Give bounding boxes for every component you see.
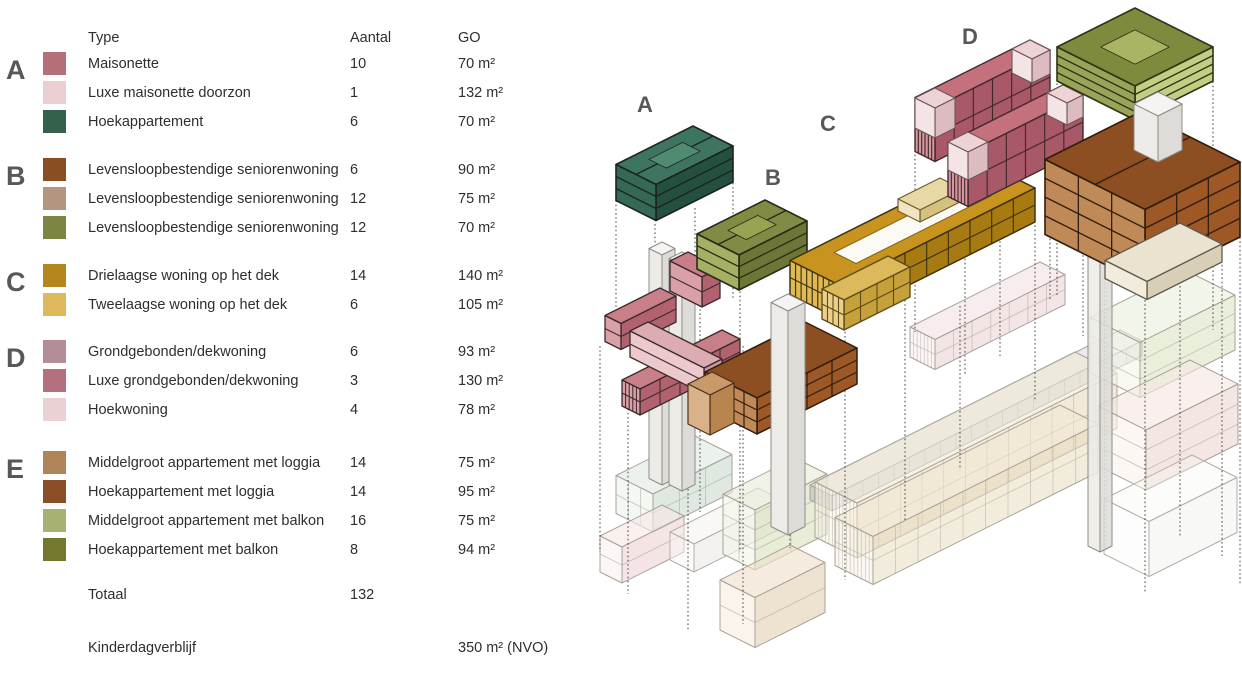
legend-row: Hoekappartement met balkon 8 94 m² xyxy=(40,535,584,564)
aantal-cell: 12 xyxy=(350,191,458,207)
legend-row: Hoekappartement 6 70 m² xyxy=(40,107,584,136)
legend-row: Levensloopbestendige seniorenwoning 6 90… xyxy=(40,155,584,184)
diagram-label-d: D xyxy=(962,24,978,49)
axonometric-diagram: ABCD xyxy=(580,0,1242,675)
go-cell: 75 m² xyxy=(458,513,584,529)
legend-row: Middelgroot appartement met loggia 14 75… xyxy=(40,448,584,477)
legend-row: Hoekwoning 4 78 m² xyxy=(40,395,584,424)
type-cell: Hoekwoning xyxy=(88,402,350,418)
color-swatch xyxy=(43,538,66,561)
aantal-cell: 16 xyxy=(350,513,458,529)
diagram-label-c: C xyxy=(820,111,836,136)
type-cell: Luxe grondgebonden/dekwoning xyxy=(88,373,350,389)
aantal-cell: 6 xyxy=(350,162,458,178)
legend-row: Levensloopbestendige seniorenwoning 12 7… xyxy=(40,184,584,213)
legend-group: C Drielaagse woning op het dek 14 140 m²… xyxy=(0,261,584,319)
legend-group: D Grondgebonden/dekwoning 6 93 m² Luxe g… xyxy=(0,337,584,424)
go-cell: 75 m² xyxy=(458,455,584,471)
group-letter: E xyxy=(0,448,40,564)
color-swatch xyxy=(43,480,66,503)
legend-panel: Type Aantal GO A Maisonette 10 70 m² Lux… xyxy=(0,0,584,662)
type-cell: Middelgroot appartement met loggia xyxy=(88,455,350,471)
totals-label: Totaal xyxy=(88,587,350,603)
go-cell: 140 m² xyxy=(458,268,584,284)
type-cell: Maisonette xyxy=(88,56,350,72)
color-swatch xyxy=(43,509,66,532)
go-cell: 93 m² xyxy=(458,344,584,360)
type-cell: Drielaagse woning op het dek xyxy=(88,268,350,284)
legend-row: Grondgebonden/dekwoning 6 93 m² xyxy=(40,337,584,366)
go-cell: 132 m² xyxy=(458,85,584,101)
go-cell: 90 m² xyxy=(458,162,584,178)
aantal-cell: 3 xyxy=(350,373,458,389)
type-cell: Levensloopbestendige seniorenwoning xyxy=(88,191,350,207)
legend-groups: A Maisonette 10 70 m² Luxe maisonette do… xyxy=(0,49,584,564)
legend-row: Luxe maisonette doorzon 1 132 m² xyxy=(40,78,584,107)
extra-label: Kinderdagverblijf xyxy=(88,640,350,656)
group-letter: C xyxy=(0,261,40,319)
core-tower xyxy=(771,303,788,536)
aantal-cell: 10 xyxy=(350,56,458,72)
color-swatch xyxy=(43,451,66,474)
extra-row: Kinderdagverblijf 350 m² (NVO) xyxy=(40,633,584,662)
type-cell: Levensloopbestendige seniorenwoning xyxy=(88,162,350,178)
diagram-label-a: A xyxy=(637,92,653,117)
type-cell: Hoekappartement xyxy=(88,114,350,130)
color-swatch xyxy=(43,264,66,287)
aantal-cell: 14 xyxy=(350,455,458,471)
color-swatch xyxy=(43,340,66,363)
color-swatch xyxy=(43,110,66,133)
aantal-cell: 6 xyxy=(350,297,458,313)
group-letter: A xyxy=(0,49,40,136)
go-cell: 94 m² xyxy=(458,542,584,558)
color-swatch xyxy=(43,187,66,210)
go-cell: 78 m² xyxy=(458,402,584,418)
type-cell: Levensloopbestendige seniorenwoning xyxy=(88,220,350,236)
aantal-cell: 4 xyxy=(350,402,458,418)
color-swatch xyxy=(43,369,66,392)
go-cell: 70 m² xyxy=(458,114,584,130)
extra-go: 350 m² (NVO) xyxy=(458,640,584,656)
core-tower xyxy=(788,303,805,536)
diagram-label-b: B xyxy=(765,165,781,190)
header-aantal: Aantal xyxy=(350,30,458,46)
aantal-cell: 8 xyxy=(350,542,458,558)
group-letter: D xyxy=(0,337,40,424)
legend-row: Drielaagse woning op het dek 14 140 m² xyxy=(40,261,584,290)
legend-row: Middelgroot appartement met balkon 16 75… xyxy=(40,506,584,535)
legend-row: Tweelaagse woning op het dek 6 105 m² xyxy=(40,290,584,319)
go-cell: 70 m² xyxy=(458,220,584,236)
legend-header: Type Aantal GO xyxy=(40,28,584,48)
aantal-cell: 12 xyxy=(350,220,458,236)
legend-row: Hoekappartement met loggia 14 95 m² xyxy=(40,477,584,506)
type-cell: Luxe maisonette doorzon xyxy=(88,85,350,101)
legend-row: Luxe grondgebonden/dekwoning 3 130 m² xyxy=(40,366,584,395)
go-cell: 70 m² xyxy=(458,56,584,72)
color-swatch xyxy=(43,81,66,104)
aantal-cell: 1 xyxy=(350,85,458,101)
legend-group: A Maisonette 10 70 m² Luxe maisonette do… xyxy=(0,49,584,136)
type-cell: Hoekappartement met balkon xyxy=(88,542,350,558)
aantal-cell: 6 xyxy=(350,344,458,360)
color-swatch xyxy=(43,216,66,239)
header-go: GO xyxy=(458,30,584,46)
core-tower xyxy=(1088,216,1100,552)
legend-row: Maisonette 10 70 m² xyxy=(40,49,584,78)
go-cell: 105 m² xyxy=(458,297,584,313)
go-cell: 130 m² xyxy=(458,373,584,389)
go-cell: 95 m² xyxy=(458,484,584,500)
type-cell: Tweelaagse woning op het dek xyxy=(88,297,350,313)
type-cell: Hoekappartement met loggia xyxy=(88,484,350,500)
type-cell: Middelgroot appartement met balkon xyxy=(88,513,350,529)
aantal-cell: 14 xyxy=(350,484,458,500)
aantal-cell: 6 xyxy=(350,114,458,130)
legend-group: B Levensloopbestendige seniorenwoning 6 … xyxy=(0,155,584,242)
legend-row: Levensloopbestendige seniorenwoning 12 7… xyxy=(40,213,584,242)
color-swatch xyxy=(43,52,66,75)
type-cell: Grondgebonden/dekwoning xyxy=(88,344,350,360)
color-swatch xyxy=(43,293,66,316)
color-swatch xyxy=(43,158,66,181)
totals-aantal: 132 xyxy=(350,587,458,603)
legend-group: E Middelgroot appartement met loggia 14 … xyxy=(0,448,584,564)
group-letter: B xyxy=(0,155,40,242)
totals-row: Totaal 132 xyxy=(40,580,584,609)
color-swatch xyxy=(43,398,66,421)
go-cell: 75 m² xyxy=(458,191,584,207)
header-type: Type xyxy=(88,30,350,46)
aantal-cell: 14 xyxy=(350,268,458,284)
